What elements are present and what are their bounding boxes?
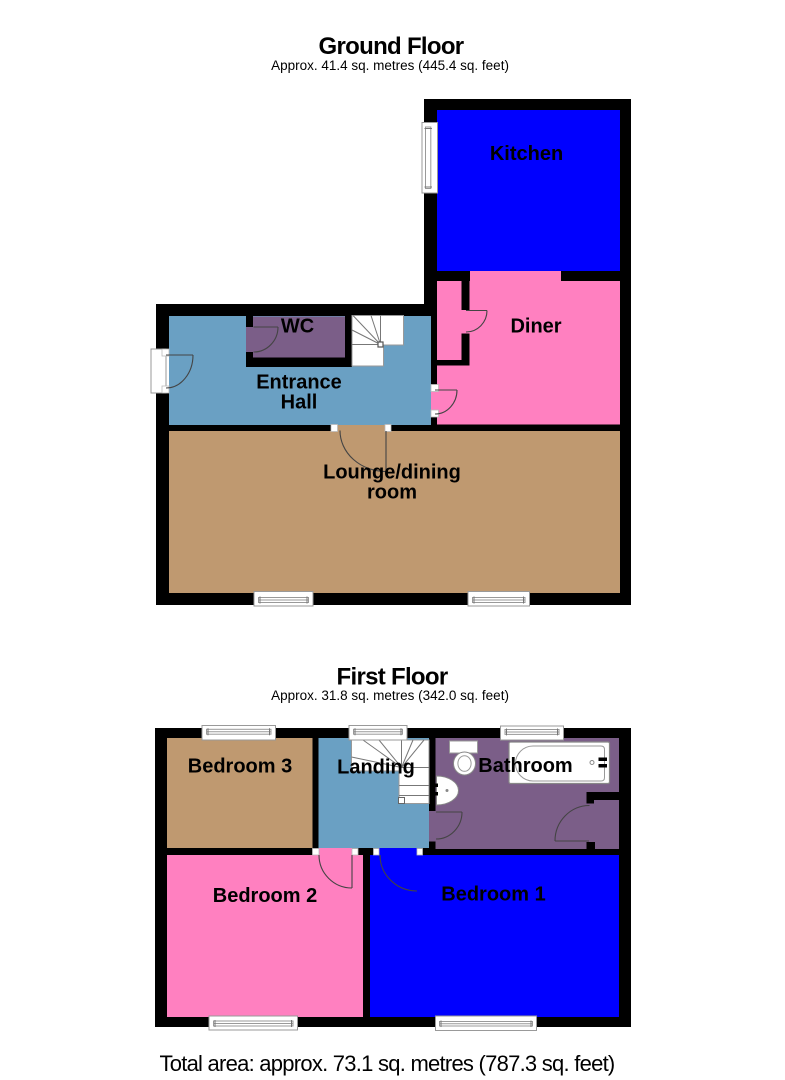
svg-text:WC: WC [281,316,314,338]
svg-text:room: room [367,482,417,504]
svg-text:Entrance: Entrance [256,372,342,394]
svg-text:Kitchen: Kitchen [490,143,563,165]
svg-text:Ground Floor: Ground Floor [319,33,464,60]
svg-text:First Floor: First Floor [337,664,448,691]
svg-text:Approx. 31.8 sq. metres (342.0: Approx. 31.8 sq. metres (342.0 sq. feet) [271,688,509,703]
svg-text:Landing: Landing [337,757,415,779]
svg-text:Bedroom 2: Bedroom 2 [213,885,317,907]
svg-text:Approx. 41.4 sq. metres (445.4: Approx. 41.4 sq. metres (445.4 sq. feet) [271,58,509,73]
svg-text:Bedroom 1: Bedroom 1 [441,884,545,906]
svg-text:Hall: Hall [281,392,318,414]
svg-text:Diner: Diner [510,316,561,338]
svg-text:Total area: approx. 73.1 sq. m: Total area: approx. 73.1 sq. metres (787… [159,1051,614,1076]
svg-text:Bathroom: Bathroom [478,755,572,777]
svg-text:Lounge/dining: Lounge/dining [323,462,461,484]
svg-text:Bedroom 3: Bedroom 3 [188,756,292,778]
